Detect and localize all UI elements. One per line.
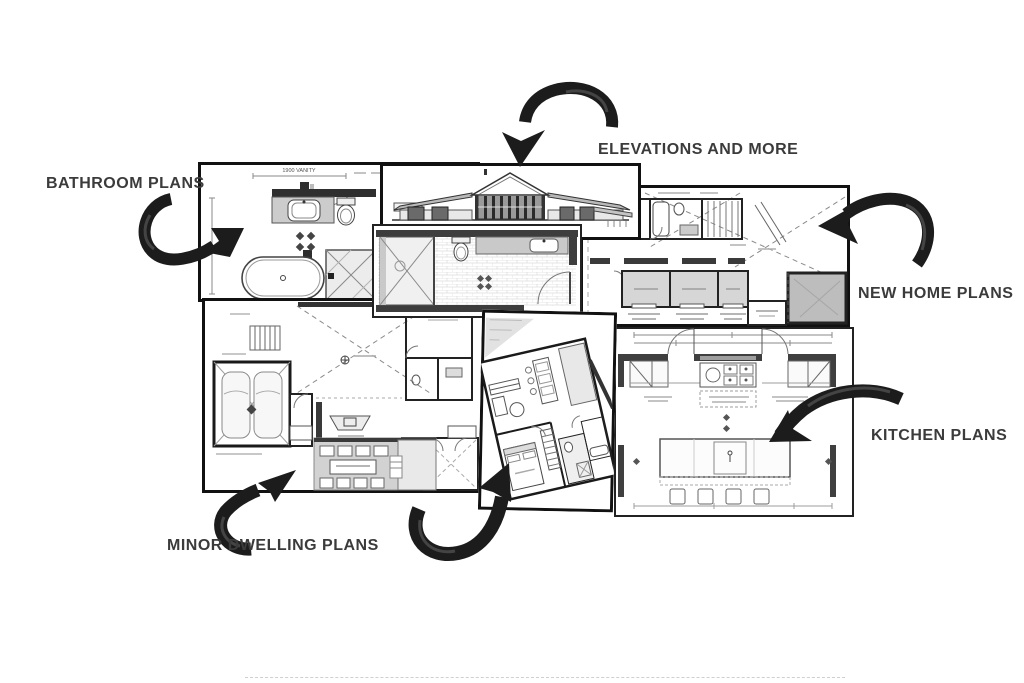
entry bbox=[290, 394, 312, 446]
garage bbox=[214, 362, 290, 446]
ensuite-plan-panel bbox=[372, 224, 582, 318]
vanity-dimension-text: 1900 VANITY bbox=[282, 168, 316, 174]
new-home-plans-label: NEW HOME PLANS bbox=[858, 285, 1013, 303]
stairs bbox=[250, 326, 280, 350]
bedroom-windows bbox=[632, 304, 743, 308]
minor-dwelling-plan-panel bbox=[202, 298, 485, 493]
kitchen-plan-panel bbox=[614, 327, 854, 517]
plans-collage: 1900 VANITY bbox=[0, 0, 1024, 683]
porch-notch bbox=[748, 301, 786, 325]
alfresco-patio bbox=[314, 438, 436, 490]
shower bbox=[326, 250, 376, 300]
garage-room bbox=[788, 273, 846, 323]
cropped-edge-line bbox=[245, 677, 845, 678]
kitchen-plans-label: KITCHEN PLANS bbox=[871, 427, 1007, 445]
toilet bbox=[337, 198, 355, 225]
minor-dwelling-plans-label: MINOR DWELLING PLANS bbox=[167, 537, 379, 555]
bathroom-plans-label: BATHROOM PLANS bbox=[46, 175, 205, 193]
elevations-label: ELEVATIONS AND MORE bbox=[598, 141, 798, 159]
apartment-plan-panel bbox=[478, 310, 617, 513]
cooktop bbox=[700, 363, 756, 387]
bathtub bbox=[242, 257, 324, 299]
shower bbox=[380, 237, 434, 305]
elevations-arrow bbox=[502, 88, 612, 167]
vanity bbox=[476, 237, 568, 254]
